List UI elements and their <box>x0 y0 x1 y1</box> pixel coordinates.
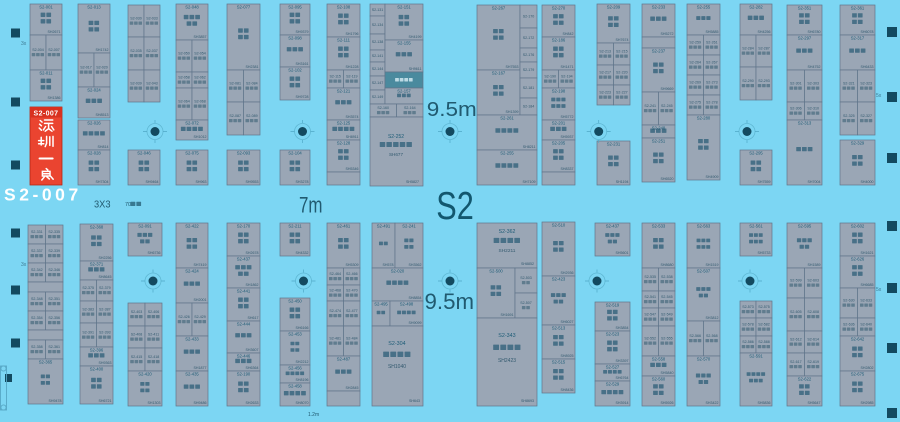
svg-text:S2-134: S2-134 <box>372 23 384 27</box>
svg-text:S2-578: S2-578 <box>742 323 754 327</box>
svg-text:S2-020: S2-020 <box>96 66 108 70</box>
svg-text:S2-093: S2-093 <box>237 151 251 156</box>
svg-text:SH3812: SH3812 <box>706 316 719 320</box>
svg-text:S2-387: S2-387 <box>99 308 111 312</box>
svg-text:S2-533: S2-533 <box>652 224 666 229</box>
svg-text:S2-461: S2-461 <box>337 224 351 229</box>
svg-text:S2-541: S2-541 <box>644 295 656 299</box>
svg-text:S2-371: S2-371 <box>90 262 104 267</box>
svg-text:SH1399: SH1399 <box>506 110 519 114</box>
svg-text:S2-519: S2-519 <box>606 303 620 308</box>
svg-text:S2-420: S2-420 <box>138 372 152 377</box>
svg-text:S2-393: S2-393 <box>99 331 111 335</box>
svg-text:S2-464: S2-464 <box>329 272 341 276</box>
svg-text:SH2845: SH2845 <box>346 386 359 390</box>
svg-text:SH5346: SH5346 <box>346 167 359 171</box>
svg-text:S2-237: S2-237 <box>652 49 666 54</box>
svg-text:SH4909: SH4909 <box>706 175 719 179</box>
svg-text:SH8070: SH8070 <box>296 401 309 405</box>
svg-text:S2-468: S2-468 <box>329 289 341 293</box>
svg-text:SH1621: SH1621 <box>861 251 874 255</box>
svg-text:S2-605: S2-605 <box>790 310 802 314</box>
svg-text:S2-383: S2-383 <box>82 308 94 312</box>
svg-text:S2-529: S2-529 <box>606 382 620 387</box>
svg-text:S2-437: S2-437 <box>237 257 251 262</box>
svg-text:S2-020: S2-020 <box>391 269 405 274</box>
svg-text:S2-275: S2-275 <box>689 101 701 105</box>
svg-text:S2-470: S2-470 <box>346 289 358 293</box>
svg-text:S2-484: S2-484 <box>346 337 358 341</box>
svg-text:S2-072: S2-072 <box>185 121 199 126</box>
svg-text:S2-011: S2-011 <box>39 71 53 76</box>
svg-text:S2-555: S2-555 <box>661 337 673 341</box>
svg-text:S2-259: S2-259 <box>689 41 701 45</box>
svg-text:S2-437: S2-437 <box>606 224 620 229</box>
svg-text:S2-356: S2-356 <box>48 316 60 320</box>
svg-text:S2-293: S2-293 <box>758 79 770 83</box>
svg-text:S2-190: S2-190 <box>237 372 251 377</box>
svg-text:S2-170: S2-170 <box>237 224 251 229</box>
svg-text:S2-474: S2-474 <box>329 309 341 313</box>
svg-text:SH1228: SH1228 <box>346 65 359 69</box>
svg-text:S2-335: S2-335 <box>48 230 60 234</box>
svg-text:S2-013: S2-013 <box>87 5 101 10</box>
svg-text:S2-017: S2-017 <box>80 66 92 70</box>
svg-text:S2-172: S2-172 <box>523 36 535 40</box>
svg-text:S2-538: S2-538 <box>661 275 673 279</box>
svg-text:SH2212: SH2212 <box>296 360 309 364</box>
svg-text:S2-160: S2-160 <box>377 106 389 110</box>
svg-text:S2-104: S2-104 <box>288 151 302 156</box>
svg-text:S2-058: S2-058 <box>178 76 190 80</box>
svg-text:SH1589: SH1589 <box>808 263 821 267</box>
svg-text:S2-269: S2-269 <box>689 81 701 85</box>
svg-text:SH4752: SH4752 <box>808 65 821 69</box>
svg-text:S2-068: S2-068 <box>194 100 206 104</box>
svg-text:SH8436: SH8436 <box>561 388 574 392</box>
svg-text:SH2381: SH2381 <box>246 65 259 69</box>
svg-text:S2-004: S2-004 <box>32 48 44 52</box>
svg-text:SH842: SH842 <box>563 32 574 36</box>
svg-text:S2-549: S2-549 <box>661 313 673 317</box>
svg-text:S2-227: S2-227 <box>616 91 628 95</box>
svg-text:S2-444: S2-444 <box>237 322 251 327</box>
svg-text:S2-179: S2-179 <box>523 68 535 72</box>
svg-text:S2-411: S2-411 <box>148 333 159 337</box>
svg-text:SH8645: SH8645 <box>99 275 112 279</box>
svg-text:SH8513: SH8513 <box>96 113 109 117</box>
svg-text:SH7004: SH7004 <box>808 180 821 184</box>
svg-text:SH2985: SH2985 <box>861 401 874 405</box>
svg-text:S2-149: S2-149 <box>372 95 384 99</box>
svg-text:S2-503: S2-503 <box>520 276 532 280</box>
svg-text:S2-487: S2-487 <box>337 357 351 362</box>
svg-text:SH3914: SH3914 <box>616 401 629 405</box>
svg-text:SH2936: SH2936 <box>561 271 574 275</box>
svg-text:SH617: SH617 <box>248 316 259 320</box>
svg-text:S2-354: S2-354 <box>31 316 43 320</box>
svg-text:SH7304: SH7304 <box>96 180 109 184</box>
svg-text:SH5926: SH5926 <box>661 401 674 405</box>
svg-text:S2-568: S2-568 <box>706 334 718 338</box>
svg-text:S2-361: S2-361 <box>851 6 865 11</box>
svg-text:S2-111: S2-111 <box>337 38 351 43</box>
svg-text:SH7559: SH7559 <box>758 180 771 184</box>
svg-text:SH6764: SH6764 <box>616 376 629 380</box>
svg-text:SH8854: SH8854 <box>409 296 422 300</box>
svg-text:S2-675: S2-675 <box>851 372 865 377</box>
svg-text:S2-102: S2-102 <box>288 68 302 73</box>
svg-text:S2-575: S2-575 <box>758 305 770 309</box>
svg-text:SH9553: SH9553 <box>246 180 259 184</box>
svg-text:SH8680: SH8680 <box>661 263 674 267</box>
svg-text:SH578: SH578 <box>383 263 394 267</box>
svg-text:S2-211: S2-211 <box>288 224 302 229</box>
svg-text:S2-215: S2-215 <box>616 50 628 54</box>
svg-text:S2-278: S2-278 <box>706 101 718 105</box>
svg-text:SH5885: SH5885 <box>706 30 719 34</box>
svg-text:SH7674: SH7674 <box>616 38 629 42</box>
svg-text:S2-252: S2-252 <box>388 134 404 140</box>
svg-text:S2-121: S2-121 <box>337 89 351 94</box>
svg-text:5x: 5x <box>876 93 882 99</box>
svg-text:S2-209: S2-209 <box>607 5 621 10</box>
svg-text:S2-586: S2-586 <box>742 340 754 344</box>
svg-text:S2-176: S2-176 <box>523 53 535 57</box>
svg-text:S2-346: S2-346 <box>48 268 60 272</box>
svg-text:S2-510: S2-510 <box>552 223 566 228</box>
svg-text:S2-633: S2-633 <box>860 299 872 303</box>
svg-text:3X3: 3X3 <box>94 199 111 211</box>
svg-text:S2-391: S2-391 <box>82 331 94 335</box>
svg-text:S2-141: S2-141 <box>372 54 384 58</box>
svg-text:S2-050: S2-050 <box>178 52 190 56</box>
svg-text:5x: 5x <box>876 287 882 293</box>
svg-text:S2-396: S2-396 <box>90 348 104 353</box>
svg-text:SH6364: SH6364 <box>246 366 259 370</box>
svg-text:S2-379: S2-379 <box>99 286 111 290</box>
svg-text:SH7109: SH7109 <box>523 180 536 184</box>
svg-text:S2-456: S2-456 <box>288 366 302 371</box>
svg-text:S2-217: S2-217 <box>599 71 611 75</box>
svg-text:S2-406: S2-406 <box>148 310 160 314</box>
svg-text:S2-301: S2-301 <box>790 82 802 86</box>
svg-text:S2-091: S2-091 <box>138 224 152 229</box>
svg-text:SH1877: SH1877 <box>194 366 207 370</box>
svg-text:S2-433: S2-433 <box>185 337 199 342</box>
svg-text:S2-423: S2-423 <box>552 277 566 282</box>
svg-text:SH8337: SH8337 <box>561 167 574 171</box>
svg-text:S2-329: S2-329 <box>851 141 865 146</box>
svg-text:1.2m: 1.2m <box>308 412 319 418</box>
svg-text:S2-233: S2-233 <box>652 5 666 10</box>
svg-text:SH7553: SH7553 <box>506 65 519 69</box>
svg-text:S2-024: S2-024 <box>87 88 101 93</box>
svg-text:S2-138: S2-138 <box>372 40 384 44</box>
svg-text:SH9486: SH9486 <box>194 401 207 405</box>
svg-text:S2-400: S2-400 <box>90 367 104 372</box>
svg-text:S2-365: S2-365 <box>39 360 53 365</box>
svg-text:S2-190: S2-190 <box>544 75 556 79</box>
svg-text:SH1742: SH1742 <box>96 48 109 52</box>
svg-text:SH2211: SH2211 <box>499 248 516 254</box>
svg-text:S2-157: S2-157 <box>397 89 411 94</box>
svg-text:S2-321: S2-321 <box>843 82 855 86</box>
svg-text:S2-095: S2-095 <box>288 5 302 10</box>
svg-text:S2-081: S2-081 <box>229 82 241 86</box>
svg-text:S2-304: S2-304 <box>388 341 405 347</box>
svg-text:S2-267: S2-267 <box>706 61 718 65</box>
svg-text:S2-064: S2-064 <box>178 100 190 104</box>
svg-text:SH5647: SH5647 <box>808 401 821 405</box>
svg-text:S2-602: S2-602 <box>851 224 865 229</box>
svg-text:SH3562: SH3562 <box>409 263 422 267</box>
svg-text:S2-337: S2-337 <box>31 249 43 253</box>
svg-text:S2-418: S2-418 <box>148 355 160 359</box>
svg-text:SH9669: SH9669 <box>661 87 674 91</box>
svg-text:SH5937: SH5937 <box>561 135 574 139</box>
svg-text:S2-642: S2-642 <box>851 337 865 342</box>
svg-text:S2-035: S2-035 <box>130 49 142 53</box>
svg-text:S2-198: S2-198 <box>552 89 566 94</box>
svg-text:S2-622: S2-622 <box>798 377 812 382</box>
svg-text:S2-267: S2-267 <box>492 6 506 11</box>
svg-text:S2-151: S2-151 <box>397 5 411 10</box>
svg-text:SH6027: SH6027 <box>561 320 574 324</box>
svg-text:S2-591: S2-591 <box>749 354 763 359</box>
svg-text:SH2256: SH2256 <box>99 256 112 260</box>
svg-text:S2-223: S2-223 <box>599 91 611 95</box>
svg-text:S2-523: S2-523 <box>606 332 620 337</box>
svg-text:S2-255: S2-255 <box>697 5 711 10</box>
svg-text:SH9728: SH9728 <box>296 95 309 99</box>
svg-text:S2-327: S2-327 <box>860 114 872 118</box>
svg-text:S2-351: S2-351 <box>798 6 812 11</box>
svg-text:S2-115: S2-115 <box>330 75 341 79</box>
svg-text:SH2001: SH2001 <box>194 298 207 302</box>
svg-text:S2-507: S2-507 <box>697 269 711 274</box>
svg-text:SH6520: SH6520 <box>661 177 674 181</box>
svg-text:S2-331: S2-331 <box>31 230 43 234</box>
svg-text:S2-535: S2-535 <box>644 275 656 279</box>
svg-text:S2-264: S2-264 <box>689 61 701 65</box>
svg-text:SH6736: SH6736 <box>148 251 161 255</box>
svg-text:S2-062: S2-062 <box>194 76 206 80</box>
svg-text:S2-287: S2-287 <box>758 47 770 51</box>
svg-text:SH3422: SH3422 <box>706 401 719 405</box>
svg-text:SH6433: SH6433 <box>861 65 874 69</box>
svg-text:S2-108: S2-108 <box>337 5 351 10</box>
svg-text:S2-588: S2-588 <box>758 340 770 344</box>
svg-text:SH1012: SH1012 <box>194 135 207 139</box>
svg-text:S2-241: S2-241 <box>644 104 656 108</box>
svg-text:S2-368: S2-368 <box>90 225 104 230</box>
svg-text:SH5309: SH5309 <box>346 263 359 267</box>
svg-text:S2-201: S2-201 <box>552 121 566 126</box>
svg-text:S2-608: S2-608 <box>807 310 819 314</box>
svg-text:SH5733: SH5733 <box>758 251 771 255</box>
svg-text:SH3397: SH3397 <box>616 359 629 363</box>
svg-text:SH2633: SH2633 <box>246 401 259 405</box>
svg-text:S2-561: S2-561 <box>749 224 763 229</box>
svg-text:S2-458: S2-458 <box>288 384 302 389</box>
svg-text:SH2802: SH2802 <box>861 366 874 370</box>
svg-text:S2-441: S2-441 <box>237 289 251 294</box>
svg-text:SH5772: SH5772 <box>561 115 574 119</box>
svg-text:S2-446: S2-446 <box>237 354 251 359</box>
svg-text:S2-362: S2-362 <box>499 229 516 235</box>
svg-text:S2-552: S2-552 <box>644 337 656 341</box>
svg-text:3x: 3x <box>21 41 27 47</box>
svg-text:SH6721: SH6721 <box>99 399 112 403</box>
svg-text:SH1519: SH1519 <box>706 263 719 267</box>
svg-text:S2-131: S2-131 <box>372 8 384 12</box>
svg-text:S2-481: S2-481 <box>329 337 341 341</box>
svg-text:S2-039: S2-039 <box>130 82 142 86</box>
svg-text:S2-241: S2-241 <box>402 224 416 229</box>
svg-text:SH8196: SH8196 <box>296 378 309 382</box>
svg-text:S2-424: S2-424 <box>185 269 199 274</box>
svg-text:9.5m: 9.5m <box>425 289 475 314</box>
svg-text:S2-306: S2-306 <box>790 107 802 111</box>
svg-text:S2-007: S2-007 <box>48 48 60 52</box>
svg-text:S2-323: S2-323 <box>860 82 872 86</box>
svg-text:SH1040: SH1040 <box>388 364 406 370</box>
svg-text:SH1194: SH1194 <box>616 180 629 184</box>
svg-text:S2-415: S2-415 <box>131 355 143 359</box>
svg-text:S2-614: S2-614 <box>807 338 819 342</box>
svg-text:S2-495: S2-495 <box>374 302 388 307</box>
svg-text:S2-626: S2-626 <box>851 257 865 262</box>
svg-text:S2-043: S2-043 <box>146 82 158 86</box>
svg-text:SH8911: SH8911 <box>346 135 359 139</box>
svg-text:S2-491: S2-491 <box>377 224 391 229</box>
svg-text:S2-128: S2-128 <box>337 141 351 146</box>
svg-text:SH4332: SH4332 <box>296 251 309 255</box>
svg-text:S2-595: S2-595 <box>798 224 812 229</box>
svg-text:S2-351: S2-351 <box>48 297 60 301</box>
svg-text:S2-547: S2-547 <box>644 313 656 317</box>
svg-text:S2-435: S2-435 <box>185 372 199 377</box>
svg-text:S2-636: S2-636 <box>843 323 855 327</box>
svg-text:SH5840: SH5840 <box>661 371 674 375</box>
svg-text:SH9363: SH9363 <box>99 361 112 365</box>
svg-text:SH2671: SH2671 <box>48 30 61 34</box>
svg-text:SH814: SH814 <box>98 145 109 149</box>
svg-text:S2-054: S2-054 <box>194 52 206 56</box>
svg-text:S2-640: S2-640 <box>860 323 872 327</box>
svg-text:3x: 3x <box>21 262 27 268</box>
svg-text:S2-560: S2-560 <box>652 377 666 382</box>
svg-text:SH9099: SH9099 <box>409 321 422 325</box>
svg-text:S2-563: S2-563 <box>697 224 711 229</box>
svg-text:SH2678: SH2678 <box>246 251 259 255</box>
svg-text:S2-375: S2-375 <box>82 286 94 290</box>
svg-text:S2-558: S2-558 <box>652 357 666 362</box>
svg-text:S2-144: S2-144 <box>372 67 384 71</box>
svg-text:SH5827: SH5827 <box>406 180 419 184</box>
svg-text:S2-450: S2-450 <box>288 299 302 304</box>
svg-text:SH6166: SH6166 <box>296 326 309 330</box>
svg-text:S2-273: S2-273 <box>706 81 718 85</box>
svg-text:S2-342: S2-342 <box>31 268 43 272</box>
svg-text:S2-513: S2-513 <box>552 326 566 331</box>
svg-text:S2-261: S2-261 <box>500 116 514 121</box>
svg-text:S2-477: S2-477 <box>346 309 358 313</box>
svg-text:S2-125: S2-125 <box>337 121 351 126</box>
svg-text:SH8211: SH8211 <box>523 145 536 149</box>
svg-text:SH643: SH643 <box>409 399 420 403</box>
svg-text:SH2423: SH2423 <box>498 358 516 364</box>
svg-text:SH3574: SH3574 <box>346 115 359 119</box>
svg-text:S2-325: S2-325 <box>843 114 855 118</box>
svg-text:S2-343: S2-343 <box>498 333 515 339</box>
svg-text:S2-582: S2-582 <box>758 323 770 327</box>
svg-text:S2-284: S2-284 <box>742 47 754 51</box>
svg-text:S2-570: S2-570 <box>697 357 711 362</box>
svg-text:SH6780: SH6780 <box>808 30 821 34</box>
svg-text:S2-408: S2-408 <box>131 333 143 337</box>
svg-text:S2-290: S2-290 <box>742 79 754 83</box>
svg-text:SH1303: SH1303 <box>148 401 161 405</box>
svg-text:S2-255: S2-255 <box>500 151 514 156</box>
svg-text:SH1862: SH1862 <box>246 283 259 287</box>
svg-text:S2-084: S2-084 <box>246 82 258 86</box>
svg-text:SH1796: SH1796 <box>346 32 359 36</box>
svg-text:S2-545: S2-545 <box>661 295 673 299</box>
svg-text:SH3607: SH3607 <box>246 348 259 352</box>
svg-text:SH6078: SH6078 <box>861 30 874 34</box>
svg-text:SH7419: SH7419 <box>194 263 207 267</box>
svg-text:S2-028: S2-028 <box>87 151 101 156</box>
svg-text:SH3854: SH3854 <box>616 326 629 330</box>
svg-text:S2-403: S2-403 <box>131 310 143 314</box>
svg-text:S2-282: S2-282 <box>749 5 763 10</box>
svg-text:SH6685: SH6685 <box>861 283 874 287</box>
svg-text:SH9379: SH9379 <box>296 30 309 34</box>
svg-text:9.5m: 9.5m <box>427 98 477 121</box>
svg-text:S2-098: S2-098 <box>288 36 302 41</box>
svg-text:S2-213: S2-213 <box>599 50 611 54</box>
svg-text:S2-119: S2-119 <box>346 75 357 79</box>
svg-text:SH4256: SH4256 <box>758 30 771 34</box>
svg-text:SH9611: SH9611 <box>409 67 422 71</box>
svg-text:SH5601: SH5601 <box>616 251 629 255</box>
svg-text:S2-603: S2-603 <box>807 279 819 283</box>
svg-text:S2-026: S2-026 <box>87 121 101 126</box>
svg-text:S2-429: S2-429 <box>194 315 206 319</box>
svg-text:S2-270: S2-270 <box>552 6 566 11</box>
svg-text:S2-205: S2-205 <box>552 141 566 146</box>
svg-text:S2-033: S2-033 <box>146 17 158 21</box>
svg-text:S2-358: S2-358 <box>31 345 43 349</box>
svg-text:S2-007: S2-007 <box>4 185 82 205</box>
svg-text:SH8852: SH8852 <box>521 262 534 266</box>
svg-text:SH8925: SH8925 <box>561 354 574 358</box>
svg-text:S2-617: S2-617 <box>790 360 802 364</box>
svg-text:S2-498: S2-498 <box>400 302 414 307</box>
svg-text:SH1471: SH1471 <box>561 65 574 69</box>
svg-text:S2-527: S2-527 <box>606 365 620 370</box>
svg-text:S2-075: S2-075 <box>185 151 199 156</box>
svg-text:S2-089: S2-089 <box>246 114 258 118</box>
svg-text:S2-167: S2-167 <box>492 71 506 76</box>
svg-text:S2-313: S2-313 <box>798 121 812 126</box>
svg-text:SH677: SH677 <box>389 152 403 157</box>
svg-text:SH8693: SH8693 <box>521 399 534 403</box>
svg-text:S2-164: S2-164 <box>404 106 416 110</box>
svg-text:S2-317: S2-317 <box>851 36 865 41</box>
